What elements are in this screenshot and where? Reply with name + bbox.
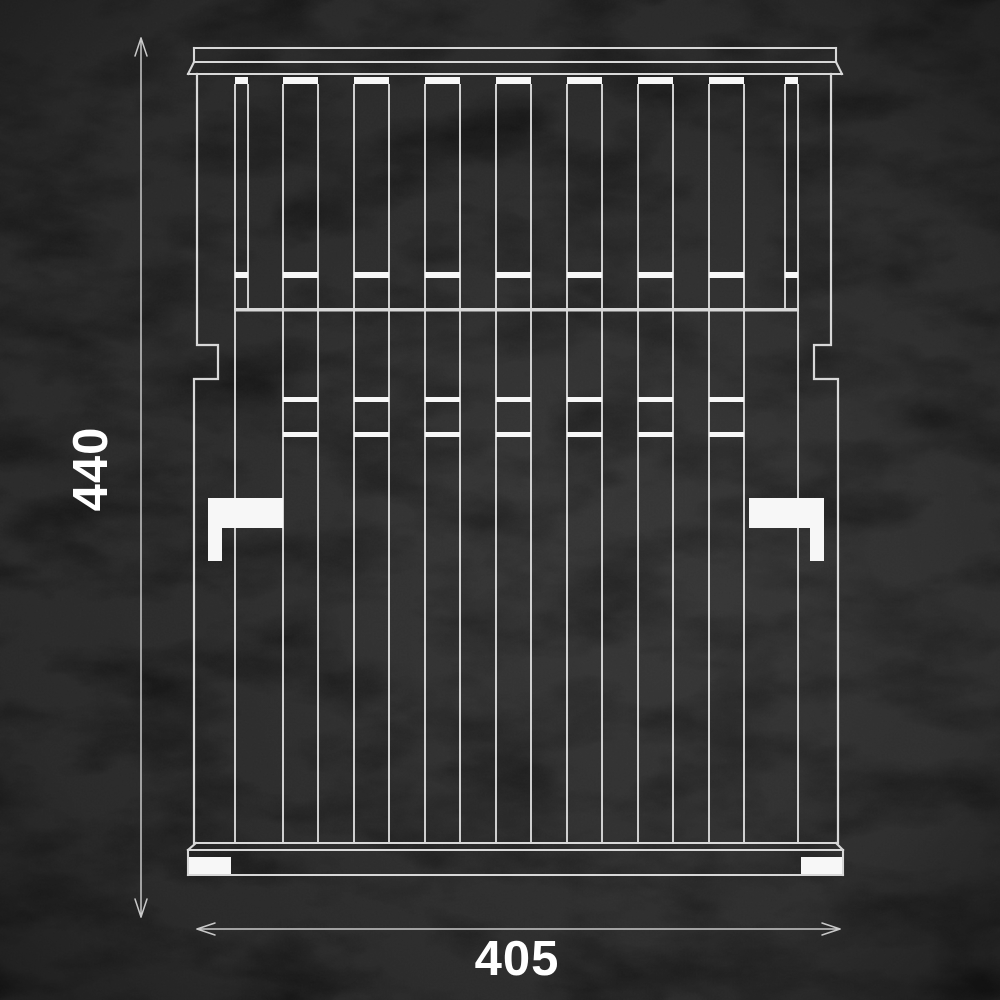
technical-drawing-svg: 440 405 (0, 0, 1000, 1000)
right-foot (801, 857, 842, 874)
left-foot (189, 857, 231, 874)
height-dimension-label: 440 (64, 427, 118, 512)
middle-divider-rail (234, 308, 799, 312)
product-dimension-image: 440 405 (0, 0, 1000, 1000)
width-dimension-label: 405 (475, 932, 560, 986)
